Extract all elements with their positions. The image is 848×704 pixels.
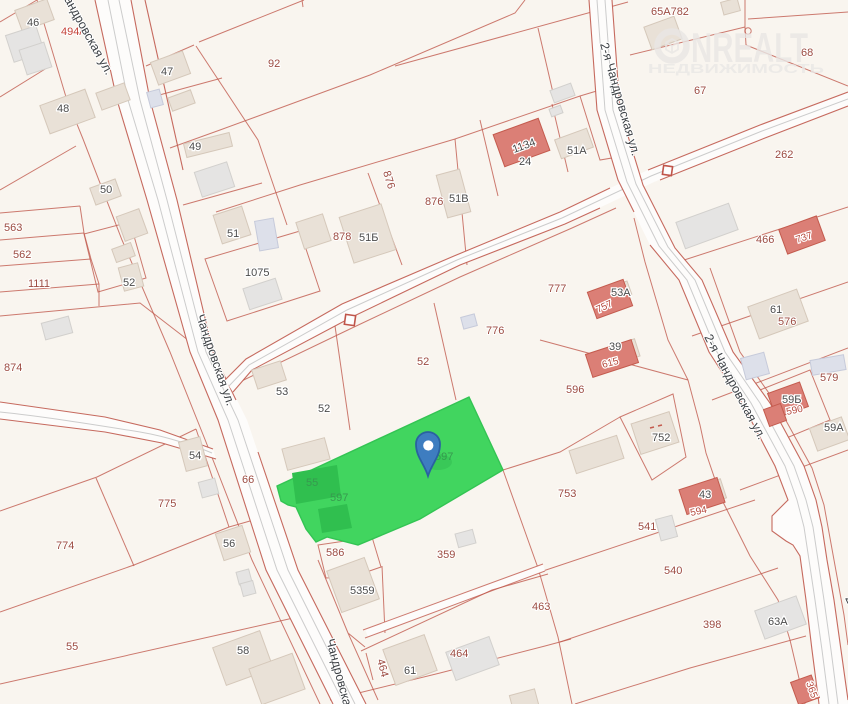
svg-text:753: 753 bbox=[558, 488, 576, 500]
svg-text:54: 54 bbox=[189, 450, 201, 462]
svg-text:563: 563 bbox=[4, 222, 22, 234]
svg-text:58: 58 bbox=[237, 645, 249, 657]
svg-text:876: 876 bbox=[425, 196, 443, 208]
svg-text:24: 24 bbox=[519, 156, 531, 168]
svg-text:47: 47 bbox=[161, 66, 173, 78]
svg-text:НЕДВИЖИМОСТЬ: НЕДВИЖИМОСТЬ bbox=[648, 61, 824, 76]
svg-text:59А: 59А bbox=[824, 422, 844, 434]
svg-text:55: 55 bbox=[66, 641, 78, 653]
svg-text:51В: 51В bbox=[449, 193, 469, 205]
svg-text:53: 53 bbox=[276, 386, 288, 398]
svg-text:39: 39 bbox=[609, 341, 621, 353]
svg-text:878: 878 bbox=[333, 231, 351, 243]
svg-text:61: 61 bbox=[404, 665, 416, 677]
svg-text:61: 61 bbox=[770, 304, 782, 316]
svg-text:52: 52 bbox=[123, 277, 135, 289]
svg-text:55: 55 bbox=[306, 477, 318, 489]
svg-text:52: 52 bbox=[318, 403, 330, 415]
svg-text:541: 541 bbox=[638, 521, 656, 533]
svg-text:776: 776 bbox=[486, 325, 504, 337]
svg-text:579: 579 bbox=[820, 372, 838, 384]
svg-text:752: 752 bbox=[652, 432, 670, 444]
svg-text:48: 48 bbox=[57, 103, 69, 115]
svg-text:540: 540 bbox=[664, 565, 682, 577]
svg-text:262: 262 bbox=[775, 149, 793, 161]
svg-text:66: 66 bbox=[242, 474, 254, 486]
svg-text:576: 576 bbox=[778, 316, 796, 328]
svg-text:52: 52 bbox=[417, 356, 429, 368]
svg-text:51А: 51А bbox=[567, 145, 587, 157]
svg-text:46: 46 bbox=[27, 17, 39, 29]
svg-text:775: 775 bbox=[158, 498, 176, 510]
svg-text:51Б: 51Б bbox=[359, 232, 378, 244]
svg-text:51: 51 bbox=[227, 228, 239, 240]
svg-text:49: 49 bbox=[189, 141, 201, 153]
svg-text:874: 874 bbox=[4, 362, 22, 374]
svg-text:596: 596 bbox=[566, 384, 584, 396]
svg-text:50: 50 bbox=[100, 184, 112, 196]
svg-text:398: 398 bbox=[703, 619, 721, 631]
svg-text:777: 777 bbox=[548, 283, 566, 295]
svg-text:586: 586 bbox=[326, 547, 344, 559]
svg-text:5359: 5359 bbox=[350, 585, 374, 597]
svg-text:774: 774 bbox=[56, 540, 74, 552]
svg-text:562: 562 bbox=[13, 249, 31, 261]
svg-text:463: 463 bbox=[532, 601, 550, 613]
svg-text:53А: 53А bbox=[611, 287, 631, 299]
svg-text:63А: 63А bbox=[768, 616, 788, 628]
svg-text:359: 359 bbox=[437, 549, 455, 561]
svg-text:1111: 1111 bbox=[28, 278, 50, 290]
svg-text:464: 464 bbox=[450, 648, 468, 660]
svg-text:67: 67 bbox=[694, 85, 706, 97]
svg-text:43: 43 bbox=[699, 489, 711, 501]
svg-text:56: 56 bbox=[223, 538, 235, 550]
svg-text:1075: 1075 bbox=[245, 267, 269, 279]
svg-text:466: 466 bbox=[756, 234, 774, 246]
svg-text:65А782: 65А782 bbox=[651, 6, 689, 18]
svg-text:92: 92 bbox=[268, 58, 280, 70]
svg-text:597: 597 bbox=[330, 492, 348, 504]
